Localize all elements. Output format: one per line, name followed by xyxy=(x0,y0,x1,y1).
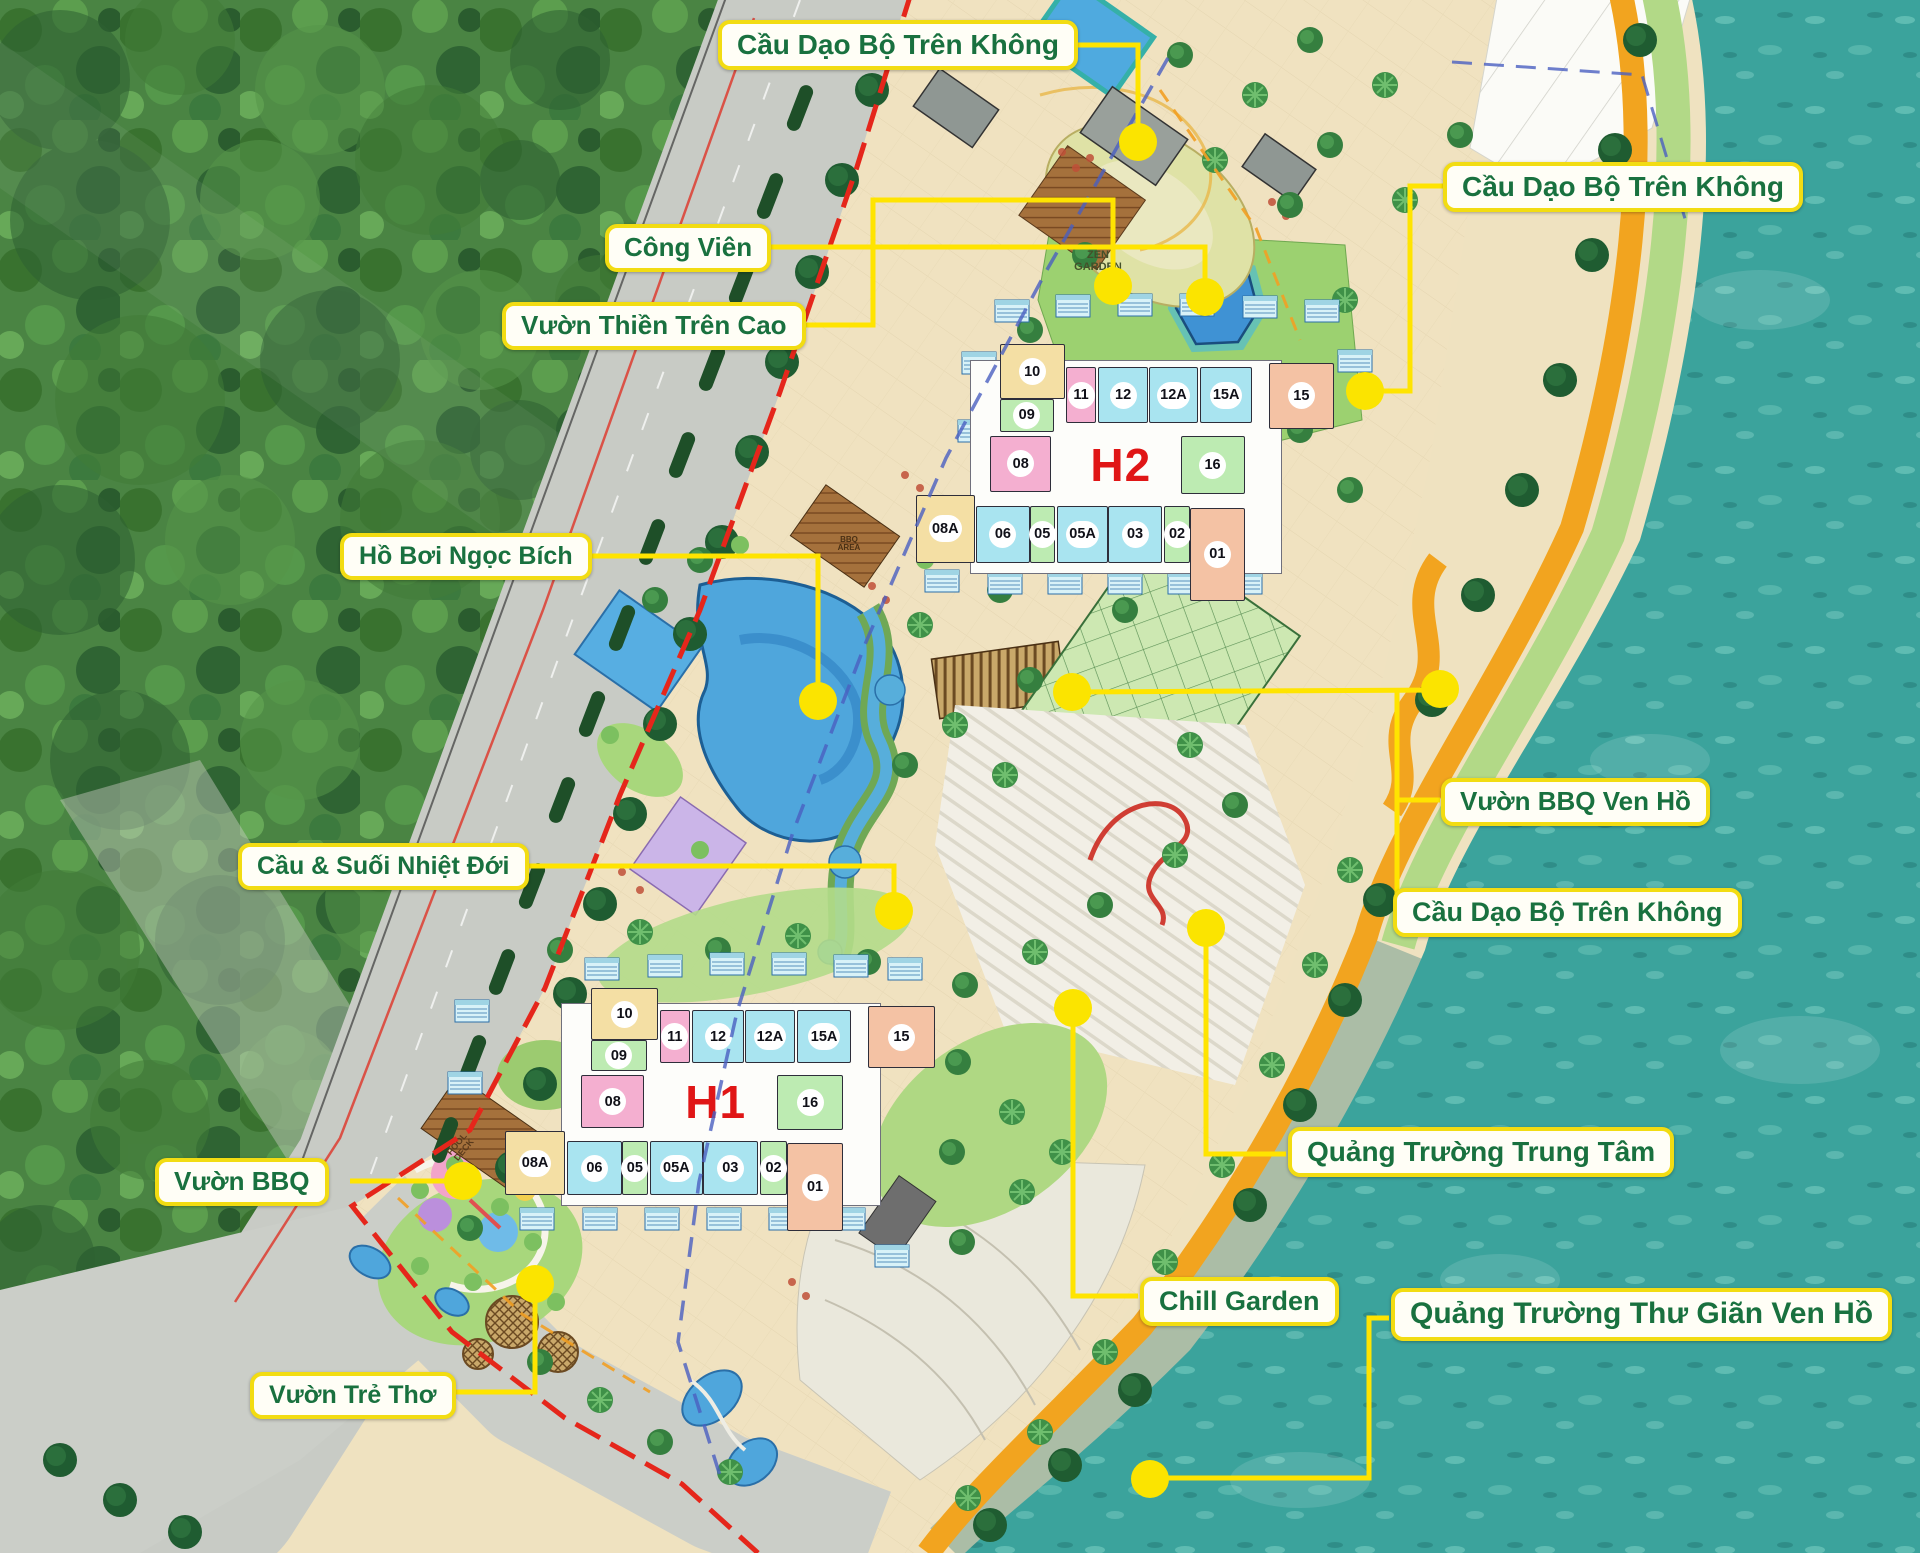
unit-number: 10 xyxy=(611,1001,638,1028)
unit-number: 03 xyxy=(1122,521,1149,548)
unit-number: 15A xyxy=(808,1023,841,1050)
unit-number: 05A xyxy=(660,1155,693,1182)
unit-number: 16 xyxy=(1199,452,1226,479)
unit-tile-h1-08: 08 xyxy=(581,1075,644,1128)
unit-number: 12A xyxy=(1157,382,1190,409)
unit-tile-h1-05: 05 xyxy=(622,1141,648,1195)
unit-tile-h1-15A: 15A xyxy=(797,1010,851,1063)
unit-tile-h2-08: 08 xyxy=(990,436,1051,492)
unit-tile-h2-10: 10 xyxy=(1000,344,1065,399)
unit-tile-h2-12: 12 xyxy=(1098,367,1149,423)
unit-tile-h2-05: 05 xyxy=(1030,506,1055,563)
building-h2: 10 09 08 11 12 12A 15A 15 16 08A 06 05 0… xyxy=(916,344,1334,606)
label-sky-bridge-mid: Cầu Dạo Bộ Trên Không xyxy=(1393,888,1742,937)
unit-tile-h1-03: 03 xyxy=(703,1141,758,1195)
unit-number: 08A xyxy=(929,515,962,542)
unit-number: 12 xyxy=(705,1023,732,1050)
label-tropical-bridge-stream: Cầu & Suối Nhiệt Đới xyxy=(238,843,529,890)
zen-garden-text: ZEN GARDEN xyxy=(1072,250,1124,273)
bbq-area-text: BBQ AREA xyxy=(828,536,870,553)
unit-number: 03 xyxy=(717,1155,744,1182)
label-park: Công Viên xyxy=(605,224,771,272)
unit-number: 12A xyxy=(754,1023,787,1050)
unit-number: 16 xyxy=(797,1089,824,1116)
unit-number: 10 xyxy=(1019,358,1046,385)
label-central-square: Quảng Trường Trung Tâm xyxy=(1288,1127,1674,1177)
unit-tile-h1-12A: 12A xyxy=(745,1010,795,1063)
unit-number: 09 xyxy=(605,1042,632,1069)
unit-tile-h2-15: 15 xyxy=(1269,363,1334,429)
building-h1: 10 09 08 11 12 12A 15A 15 16 08A 06 05 0… xyxy=(505,988,935,1236)
unit-number: 09 xyxy=(1013,402,1040,429)
unit-number: 01 xyxy=(1204,541,1231,568)
unit-number: 02 xyxy=(760,1155,787,1182)
label-lakeside-relaxation-square: Quảng Trường Thư Giãn Ven Hồ xyxy=(1391,1288,1892,1341)
unit-tile-h2-01: 01 xyxy=(1190,508,1244,601)
unit-number: 01 xyxy=(802,1174,829,1201)
unit-tile-h1-12: 12 xyxy=(692,1010,744,1063)
label-children-garden: Vườn Trẻ Thơ xyxy=(250,1372,456,1419)
unit-number: 05 xyxy=(1029,521,1056,548)
unit-tile-h2-02: 02 xyxy=(1164,506,1190,563)
unit-tile-h1-09: 09 xyxy=(591,1040,647,1071)
unit-tile-h2-08A: 08A xyxy=(916,495,975,563)
unit-tile-h1-16: 16 xyxy=(777,1075,843,1130)
unit-tile-h2-16: 16 xyxy=(1181,436,1245,494)
label-sky-bridge-right: Cầu Dạo Bộ Trên Không xyxy=(1443,162,1803,212)
label-sky-bridge-top: Cầu Dạo Bộ Trên Không xyxy=(718,20,1078,70)
unit-number: 11 xyxy=(661,1023,688,1050)
unit-tile-h2-06: 06 xyxy=(976,506,1030,563)
unit-tile-h2-12A: 12A xyxy=(1149,367,1197,423)
unit-tile-h1-15: 15 xyxy=(868,1006,935,1068)
unit-number: 08A xyxy=(519,1150,552,1177)
unit-tile-h1-11: 11 xyxy=(660,1010,690,1063)
unit-number: 06 xyxy=(989,521,1016,548)
site-plan-map: 10 09 08 11 12 12A 15A 15 16 08A 06 05 0… xyxy=(0,0,1920,1553)
label-chill-garden: Chill Garden xyxy=(1140,1277,1339,1326)
unit-tile-h2-15A: 15A xyxy=(1200,367,1253,423)
label-lakeside-bbq-garden: Vườn BBQ Ven Hồ xyxy=(1441,778,1710,826)
unit-number: 02 xyxy=(1164,521,1191,548)
unit-tile-h1-01: 01 xyxy=(787,1143,843,1231)
unit-number: 12 xyxy=(1110,382,1137,409)
unit-number: 05 xyxy=(621,1155,648,1182)
unit-tile-h1-02: 02 xyxy=(760,1141,787,1195)
unit-number: 06 xyxy=(581,1155,608,1182)
unit-tile-h1-08A: 08A xyxy=(505,1131,565,1195)
unit-tile-h1-06: 06 xyxy=(567,1141,622,1195)
unit-number: 08 xyxy=(599,1088,626,1115)
unit-tile-h2-05A: 05A xyxy=(1057,506,1108,563)
label-bbq-garden: Vườn BBQ xyxy=(155,1158,329,1206)
label-elevated-zen-garden: Vườn Thiền Trên Cao xyxy=(502,302,806,350)
unit-tile-h1-05A: 05A xyxy=(650,1141,703,1195)
unit-number: 08 xyxy=(1007,450,1034,477)
unit-tile-h2-11: 11 xyxy=(1066,367,1095,423)
unit-number: 15 xyxy=(1288,382,1315,409)
unit-number: 15 xyxy=(888,1024,915,1051)
building-name-h1: H1 xyxy=(660,1072,772,1132)
unit-tile-h2-09: 09 xyxy=(1000,399,1054,432)
label-jade-pool: Hồ Bơi Ngọc Bích xyxy=(340,533,592,580)
unit-tile-h1-10: 10 xyxy=(591,988,658,1040)
unit-number: 11 xyxy=(1068,382,1095,409)
unit-number: 15A xyxy=(1210,382,1243,409)
unit-tile-h2-03: 03 xyxy=(1108,506,1162,563)
building-name-h2: H2 xyxy=(1066,433,1175,496)
unit-number: 05A xyxy=(1066,521,1099,548)
